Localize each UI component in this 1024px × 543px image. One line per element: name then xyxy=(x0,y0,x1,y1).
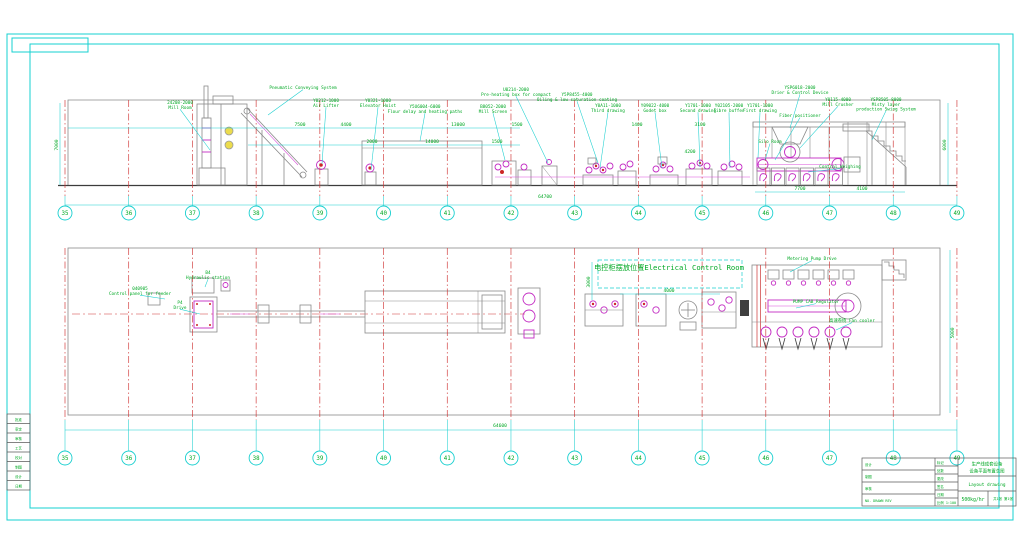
plan-pump-block xyxy=(740,300,749,316)
revision-strip-row: 日期 xyxy=(15,483,22,488)
revision-strip-row: 批准 xyxy=(15,417,22,422)
plan-extruder-3 xyxy=(702,292,736,328)
screen-machine xyxy=(492,161,531,185)
grid-number: 37 xyxy=(189,456,196,462)
plan-extruder-2 xyxy=(636,294,666,326)
dimension-text: 4100 xyxy=(856,186,867,192)
elevation-label-13: YSP6018-2000Drier & Control Device xyxy=(772,85,829,96)
grid-number: 43 xyxy=(571,211,578,217)
generated-annotations: 3535363637373838393940404141424243434444… xyxy=(7,85,1016,506)
plan-spinning-unit xyxy=(752,265,882,349)
grid-number: 46 xyxy=(762,211,769,217)
plan-label-6: 高速卷绕 Fan cooler xyxy=(829,317,875,324)
plan-label-4: Metering Pump Drive xyxy=(787,256,837,262)
dimension-text: 1500 xyxy=(491,139,502,145)
elevation-leader xyxy=(758,112,760,158)
dimension-text: 2000 xyxy=(366,139,377,145)
drawing-stand-2 xyxy=(686,160,712,185)
grid-number: 49 xyxy=(953,211,960,217)
dimension-text: 14000 xyxy=(425,139,439,145)
elevation-leader xyxy=(600,112,608,168)
dimension-text: 3000 xyxy=(586,276,592,287)
elevation-label-14: Y0115-4000Mill Crusher xyxy=(822,97,853,108)
elevation-label-18: Contral Weighing xyxy=(819,164,861,170)
inclined-conveyor xyxy=(241,108,307,185)
grid-number: 40 xyxy=(380,456,387,462)
elevator-pump xyxy=(365,164,376,185)
titleblock-drawing-name: Layout drawing xyxy=(968,482,1005,488)
elevation-label-5: U0214-2000Pre-heating box for compact xyxy=(481,87,551,98)
plan-feeder-assembly xyxy=(518,288,540,338)
grid-number: 43 xyxy=(571,456,578,462)
revision-strip-row: 审定 xyxy=(15,426,22,431)
elevation-leader xyxy=(698,112,700,167)
plan-label-1: 040905Control panel for feeder xyxy=(109,286,171,297)
dimension-text: 4200 xyxy=(684,149,695,155)
dimension-text: 6000 xyxy=(942,139,948,150)
revision-strip-row: 制图 xyxy=(15,464,22,469)
plan-dryer-box xyxy=(365,291,505,333)
titleblock-capacity: 500kg/hr xyxy=(961,497,984,503)
plan-label-2: P4Drive xyxy=(174,300,187,311)
dimension-text: 7700 xyxy=(794,186,805,192)
heating-path-box xyxy=(362,141,482,185)
grid-number: 38 xyxy=(253,211,260,217)
elevation-leader xyxy=(790,94,800,128)
grid-number: 39 xyxy=(316,211,323,217)
grid-number: 35 xyxy=(62,456,69,462)
revision-strip-row: 设计 xyxy=(15,474,22,479)
grid-number: 46 xyxy=(762,456,769,462)
air-lifter-pump xyxy=(315,161,328,186)
titleblock-mid-row: 签名 xyxy=(937,484,944,489)
plan-label-5: PUMP CAB Regulator xyxy=(793,299,840,305)
titleblock-mid-row: 比例 1:100 xyxy=(937,500,956,505)
grid-number: 36 xyxy=(125,456,132,462)
titleblock-sign-row: 制图 xyxy=(865,474,872,479)
godet-stand xyxy=(650,157,678,185)
frame-title-strip xyxy=(12,38,88,52)
elevation-leader xyxy=(516,96,548,163)
grid-number: 44 xyxy=(635,456,642,462)
dimension-text: 4400 xyxy=(340,122,351,128)
grid-number: 47 xyxy=(826,456,833,462)
grid-number: 41 xyxy=(444,211,451,217)
titleblock-sign-row: 设计 xyxy=(865,462,872,467)
dimension-text: 5000 xyxy=(950,327,956,338)
elevation-label-4: Y5U6004-6000Flour delay and heating path… xyxy=(387,104,462,115)
elevation-label-9: Y09022-4000Godet box xyxy=(641,103,670,114)
titleblock-company-line: 生产线成套设备 xyxy=(972,461,1003,468)
elevation-label-0: 24208-2000Mill Room xyxy=(167,100,193,111)
plan-stairs xyxy=(882,260,906,280)
plan-label-3: 电控柜摆放位置Electrical Control Room xyxy=(594,263,744,272)
oiling-coater xyxy=(583,158,613,185)
dimension-text: 13000 xyxy=(451,122,465,128)
elevation-leader xyxy=(872,111,886,140)
dimension-text: 7500 xyxy=(294,122,305,128)
plan-extruder-1 xyxy=(585,294,623,326)
elevation-label-17: Silo Room xyxy=(758,139,782,145)
elevation-label-16: Fiber positioner xyxy=(779,113,821,119)
drawing-canvas: 3535363637373838393940404141424243434444… xyxy=(0,0,1024,543)
dimension-text: 4000 xyxy=(663,288,674,294)
plan-gearbox xyxy=(190,297,217,332)
elevation-leader xyxy=(655,112,662,168)
dimension-text: 64600 xyxy=(493,423,507,429)
grid-number: 35 xyxy=(62,211,69,217)
grid-number: 38 xyxy=(253,456,260,462)
elevation-leader xyxy=(420,113,425,141)
titleblock-mid-row: 标记 xyxy=(937,460,944,465)
dimension-text: 7000 xyxy=(54,139,60,150)
elevation-leader xyxy=(322,107,326,164)
elevation-label-1: Pneumatic Conveying System xyxy=(269,85,337,91)
dimension-text: 3100 xyxy=(694,122,705,128)
mill-tower xyxy=(197,86,247,185)
elevation-label-12: Y1701-1000First drawing xyxy=(743,103,777,114)
plan-spinnerets xyxy=(761,327,851,349)
grid-number: 47 xyxy=(826,211,833,217)
grid-number: 48 xyxy=(890,211,897,217)
titleblock-mid-row: 日期 xyxy=(937,492,944,497)
dimension-text: 1500 xyxy=(511,122,522,128)
revision-strip-row: 校对 xyxy=(15,455,22,460)
elevation-label-15: YSP8505-8000Misty layerproduction Swing … xyxy=(856,97,916,113)
dimension-text: 1400 xyxy=(631,122,642,128)
titleblock-sign-row: NO. DRAWN REV xyxy=(865,499,892,503)
plan-blower xyxy=(679,301,697,330)
titleblock-mid-row: 处数 xyxy=(937,468,944,473)
grid-number: 45 xyxy=(699,456,706,462)
drawing-stand-1 xyxy=(618,161,636,185)
elevation-leader xyxy=(775,118,800,160)
grid-number: 49 xyxy=(953,456,960,462)
grid-number: 37 xyxy=(189,211,196,217)
elevation-label-2: Y0212-1000Air Lifter xyxy=(313,98,339,109)
grid-number: 42 xyxy=(507,211,514,217)
grid-number: 45 xyxy=(699,211,706,217)
titleblock-sign-row: 审核 xyxy=(865,486,872,491)
titleblock-sheet-note: 共1张 第1张 xyxy=(993,496,1013,501)
compact-preheater xyxy=(542,160,557,186)
grid-number: 40 xyxy=(380,211,387,217)
grid-number: 42 xyxy=(507,456,514,462)
elevation-leader xyxy=(493,113,505,160)
elevation-label-10: Y1701-1000Second drawing xyxy=(680,103,717,114)
grid-number: 36 xyxy=(125,211,132,217)
plan-view xyxy=(68,248,940,415)
grid-number: 41 xyxy=(444,456,451,462)
elevation-label-6: B8052-2000Mill Screen xyxy=(479,104,508,115)
grid-number: 39 xyxy=(316,456,323,462)
elevation-leader xyxy=(729,112,730,168)
titleblock-company-line: 设备平面布置总图 xyxy=(969,468,1005,475)
grid-number: 48 xyxy=(890,456,897,462)
elevation-leader xyxy=(371,107,378,170)
elevation-label-11: Y02105-2000Fibre buffer xyxy=(713,103,744,114)
elevation-leader xyxy=(268,90,303,115)
revision-strip-row: 审核 xyxy=(15,436,22,441)
revision-strip-row: 工艺 xyxy=(15,445,22,450)
elevation-label-8: Y0A11-1000Third drawing xyxy=(591,103,625,114)
elevation-building xyxy=(58,100,957,186)
elevation-leader xyxy=(180,109,210,150)
grid-number: 44 xyxy=(635,211,642,217)
dimension-text: 64700 xyxy=(538,194,552,200)
mixing-tower-unit xyxy=(753,122,905,185)
titleblock-mid-row: 更改 xyxy=(937,476,944,481)
